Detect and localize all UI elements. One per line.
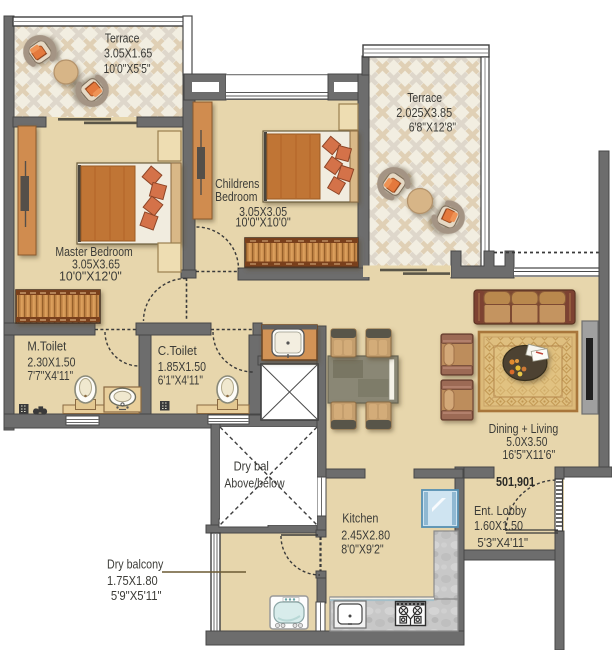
svg-text:M.Toilet: M.Toilet xyxy=(27,339,66,353)
svg-text:1.60X1.50: 1.60X1.50 xyxy=(474,519,523,533)
svg-text:Dining + Living: Dining + Living xyxy=(489,422,559,436)
svg-text:10'0"X5'5": 10'0"X5'5" xyxy=(104,62,151,76)
svg-text:8'0"X9'2": 8'0"X9'2" xyxy=(341,543,384,557)
svg-text:7'7"X4'11": 7'7"X4'11" xyxy=(27,369,73,383)
svg-text:5'3"X4'11": 5'3"X4'11" xyxy=(477,536,528,550)
svg-text:2.45X2.80: 2.45X2.80 xyxy=(341,529,390,543)
svg-text:Bedroom: Bedroom xyxy=(215,190,257,204)
svg-text:Above/below: Above/below xyxy=(224,477,285,491)
svg-text:6'8"X12'8": 6'8"X12'8" xyxy=(409,121,456,135)
svg-text:Kitchen: Kitchen xyxy=(342,512,378,526)
svg-text:Terrace: Terrace xyxy=(105,31,140,45)
svg-text:1.85X1.50: 1.85X1.50 xyxy=(158,360,206,374)
svg-text:C.Toilet: C.Toilet xyxy=(158,344,197,358)
svg-text:2.30X1.50: 2.30X1.50 xyxy=(27,355,75,369)
svg-text:Dry bal: Dry bal xyxy=(234,460,269,474)
svg-text:2.025X3.85: 2.025X3.85 xyxy=(396,106,452,120)
svg-text:10'0"X12'0": 10'0"X12'0" xyxy=(59,270,122,284)
svg-text:1.75X1.80: 1.75X1.80 xyxy=(107,574,158,588)
svg-text:10'0"X10'0": 10'0"X10'0" xyxy=(235,216,290,230)
svg-text:3.05X1.65: 3.05X1.65 xyxy=(104,46,152,60)
svg-text:16'5"X11'6": 16'5"X11'6" xyxy=(502,448,555,462)
svg-text:501,901: 501,901 xyxy=(496,475,535,489)
svg-text:Terrace: Terrace xyxy=(407,91,442,105)
svg-text:6'1"X4'11": 6'1"X4'11" xyxy=(158,374,203,388)
svg-text:Dry balcony: Dry balcony xyxy=(107,558,164,572)
svg-text:Ent. Lobby: Ent. Lobby xyxy=(474,504,527,518)
svg-text:5'9"X5'11": 5'9"X5'11" xyxy=(111,589,162,603)
svg-text:Childrens: Childrens xyxy=(215,177,259,191)
